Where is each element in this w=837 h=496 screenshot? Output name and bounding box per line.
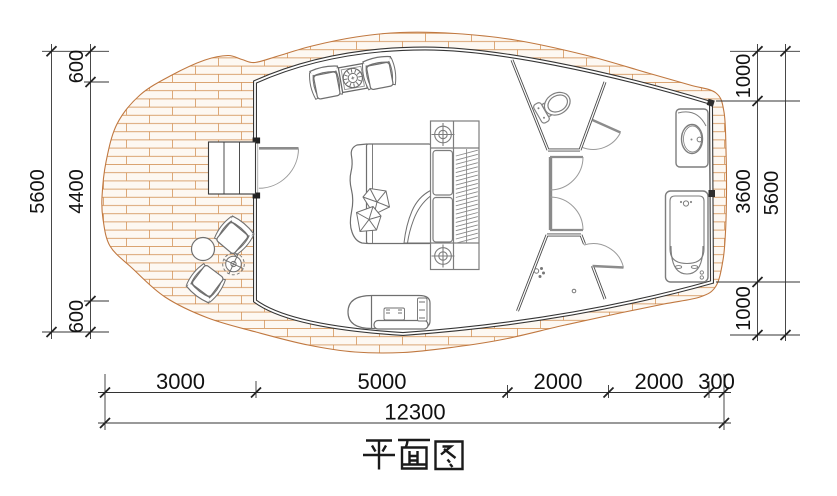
svg-text:300: 300: [698, 369, 735, 394]
svg-text:5000: 5000: [358, 369, 407, 394]
svg-text:5600: 5600: [27, 169, 49, 214]
svg-text:4400: 4400: [66, 169, 88, 214]
svg-text:1000: 1000: [733, 54, 755, 99]
svg-text:3000: 3000: [156, 369, 205, 394]
svg-text:3600: 3600: [733, 169, 755, 214]
svg-text:12300: 12300: [384, 400, 445, 425]
svg-text:1000: 1000: [733, 286, 755, 331]
svg-text:2000: 2000: [534, 369, 583, 394]
svg-text:600: 600: [66, 300, 88, 333]
svg-text:600: 600: [66, 50, 88, 83]
svg-text:2000: 2000: [635, 369, 684, 394]
svg-text:5600: 5600: [761, 171, 783, 216]
